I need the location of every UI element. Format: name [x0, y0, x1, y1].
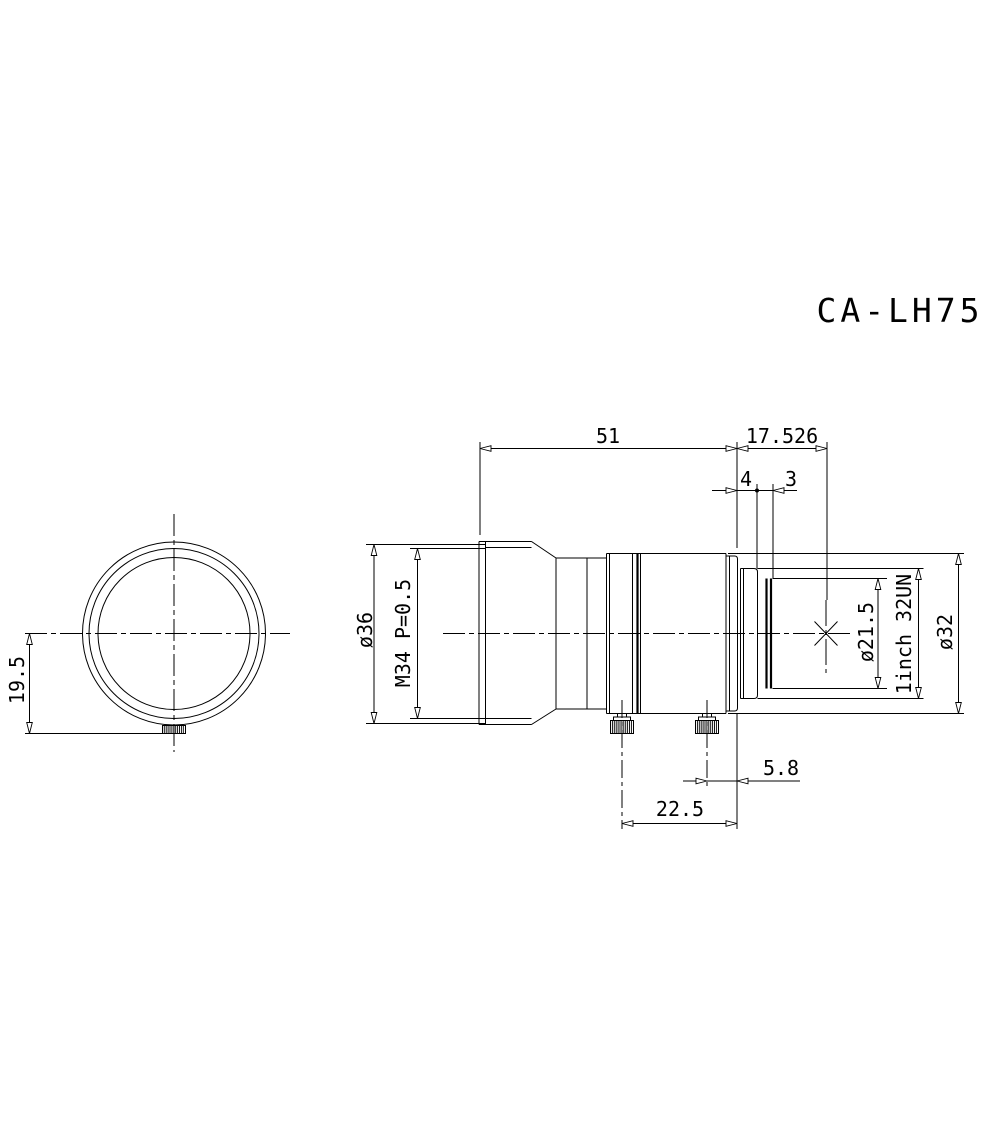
drawing-canvas: CA-LH75 [0, 0, 1000, 1122]
dim-label-screw-offset: 19.5 [5, 656, 29, 704]
dimension-annotations: 51 17.526 4 3 19.5 ø36 M34 P=0.5 ø21.5 1… [5, 424, 964, 829]
dimension-arrowheads [27, 446, 962, 827]
dim-label-rear-diameter: ø32 [933, 614, 957, 650]
extension-lines [25, 442, 964, 829]
dim-label-overall-length: 51 [596, 424, 620, 448]
dimension-lines [30, 449, 959, 824]
dimension-origin-dot [755, 489, 759, 493]
front-view-thumbscrew [163, 726, 186, 734]
dim-label-rear-screw-to-flange: 5.8 [763, 756, 799, 780]
drawing-page: CA-LH75 [0, 0, 1000, 1122]
page-title: CA-LH75 [816, 291, 983, 330]
dim-label-rear-aperture: ø21.5 [854, 602, 878, 662]
dim-label-3: 3 [785, 467, 797, 491]
dim-label-front-diameter: ø36 [353, 612, 377, 648]
dim-label-front-screw-to-flange: 22.5 [656, 797, 704, 821]
front-view [25, 514, 290, 752]
dim-label-filter-thread: M34 P=0.5 [391, 579, 415, 687]
side-view [443, 542, 852, 830]
dim-label-mount-thread: 1inch 32UN [892, 574, 916, 694]
image-plane-marker [815, 600, 838, 673]
dim-label-flange-to-image: 17.526 [746, 424, 818, 448]
dim-label-4: 4 [740, 467, 752, 491]
